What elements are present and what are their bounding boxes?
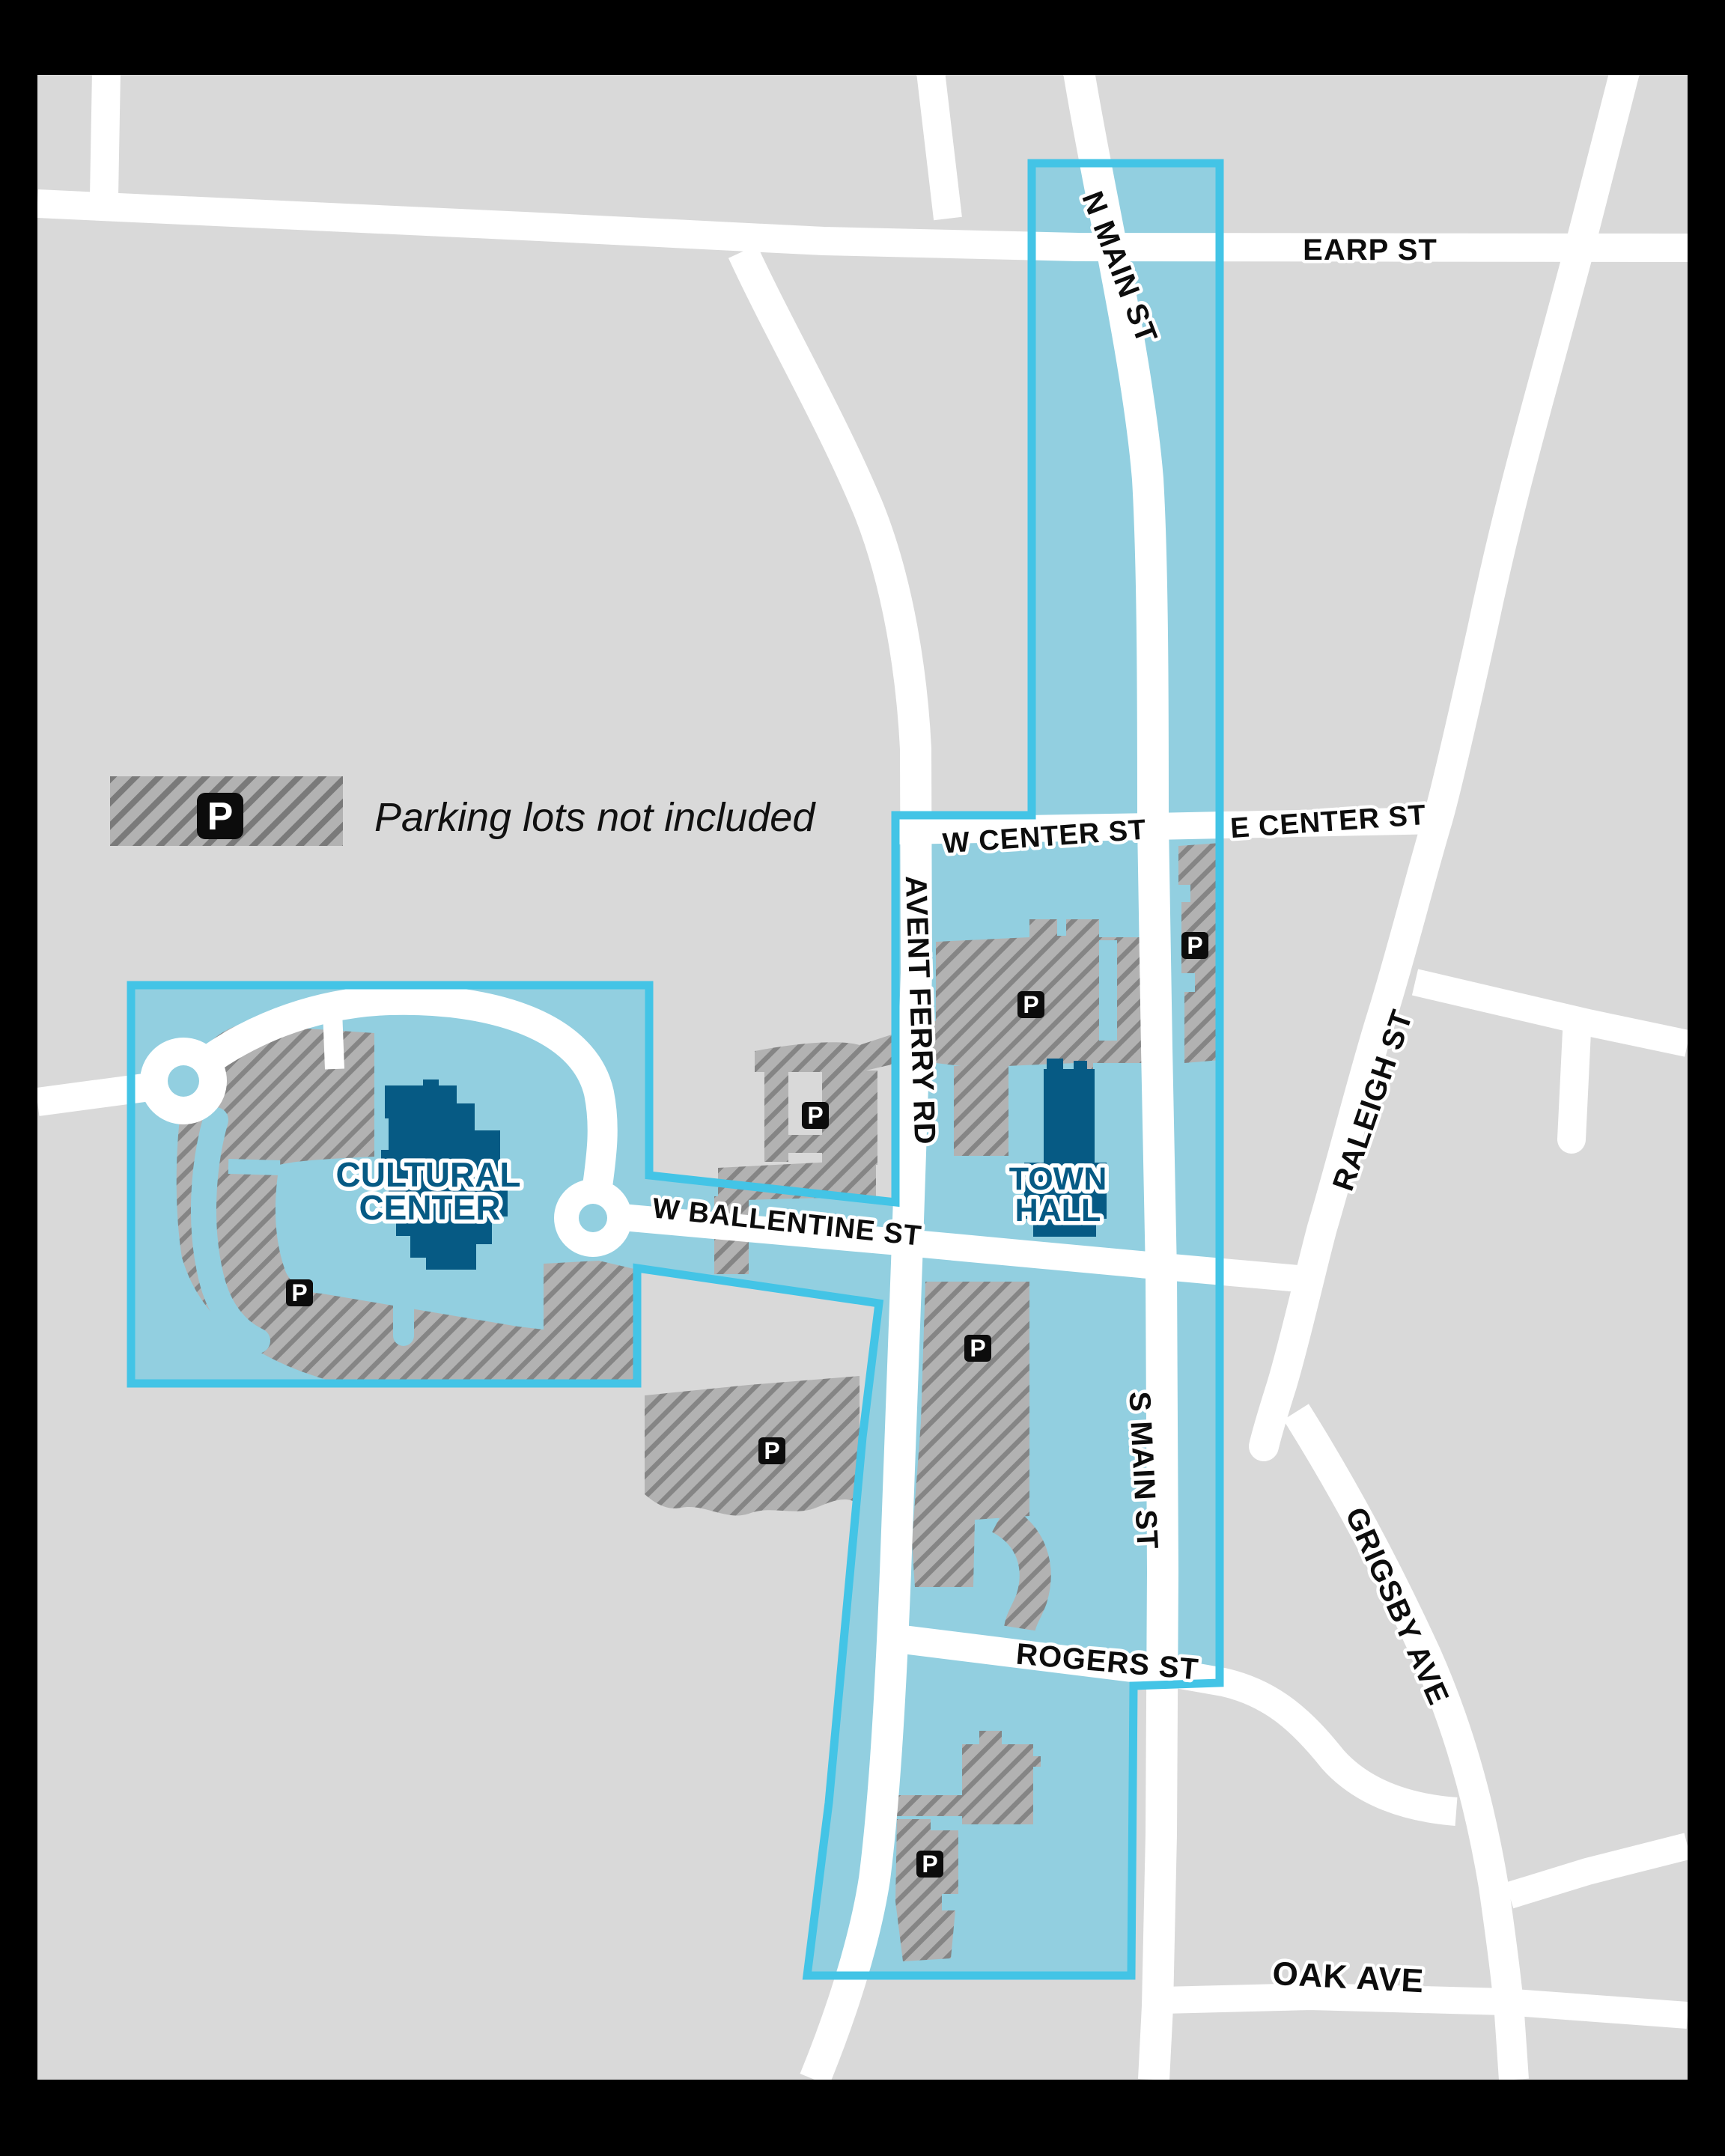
svg-text:TOWN: TOWN [1009,1161,1107,1197]
svg-text:EARP ST: EARP ST [1303,234,1437,267]
svg-text:Parking lots not included: Parking lots not included [374,795,816,840]
svg-text:CENTER: CENTER [359,1188,500,1227]
svg-text:HALL: HALL [1015,1193,1101,1228]
